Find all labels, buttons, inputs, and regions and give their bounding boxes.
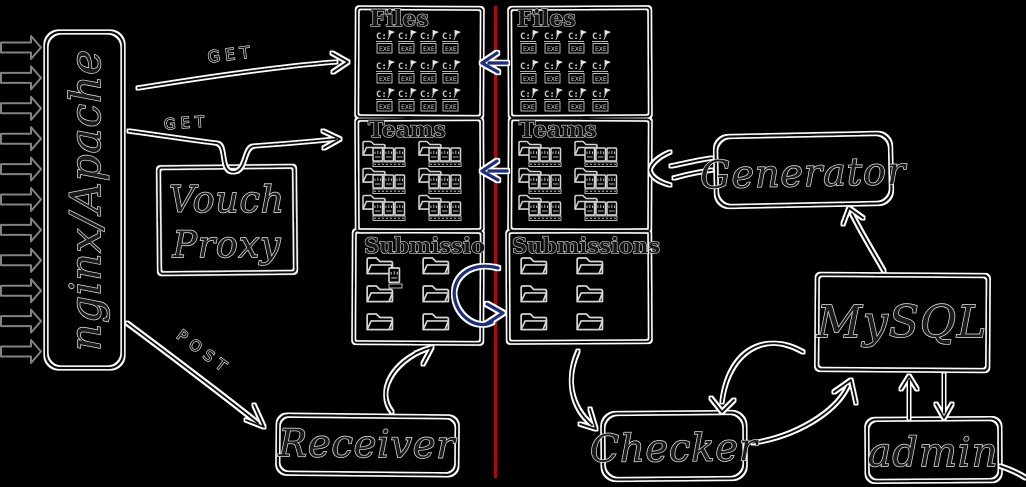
exe-file-icon bbox=[420, 60, 439, 83]
team-folder-icon bbox=[519, 169, 561, 194]
exe-file-icon bbox=[544, 60, 563, 83]
submissions-title-left: Submissio bbox=[364, 233, 485, 258]
exe-file-icon bbox=[442, 60, 461, 83]
exe-file-icon bbox=[568, 88, 587, 111]
right-files-icons bbox=[520, 30, 611, 111]
mysql-label: MySQL bbox=[816, 297, 987, 348]
exe-file-icon bbox=[520, 60, 539, 83]
right-teams-icons bbox=[519, 142, 617, 221]
submission-folder-icon bbox=[423, 314, 448, 330]
submission-file-icon bbox=[389, 268, 399, 282]
mysql-to-checker-arrow bbox=[711, 343, 803, 412]
submissions-title-right: Submissions bbox=[512, 233, 660, 258]
get-label-files: GET bbox=[207, 42, 256, 67]
team-folder-icon bbox=[363, 142, 405, 167]
exe-file-icon bbox=[544, 88, 563, 111]
submission-file-strip bbox=[389, 284, 402, 288]
edge-stroke bbox=[1000, 466, 1026, 478]
architecture-diagram: C:/ EXE bbox=[0, 0, 1026, 487]
incoming-request-arrow bbox=[1, 218, 41, 241]
submission-folder-icon bbox=[423, 286, 448, 302]
exe-file-icon bbox=[420, 30, 439, 53]
receiver-to-submissions-arrow bbox=[386, 347, 432, 412]
exe-file-icon bbox=[376, 30, 395, 53]
files-title-left: Files bbox=[370, 6, 429, 32]
exe-file-icon bbox=[376, 88, 395, 111]
incoming-request-arrow bbox=[1, 97, 41, 120]
submission-folder-icon bbox=[367, 314, 392, 330]
exe-file-icon bbox=[398, 88, 417, 111]
incoming-request-arrow bbox=[1, 249, 41, 272]
files-title-right: Files bbox=[517, 6, 576, 32]
sync-arrow-files bbox=[482, 53, 507, 72]
exe-file-icon bbox=[376, 60, 395, 83]
exe-file-icon bbox=[544, 30, 563, 53]
post-label: POST bbox=[173, 326, 235, 379]
exe-file-icon bbox=[520, 88, 539, 111]
admin-to-mysql-arrow bbox=[901, 376, 917, 419]
submissions-to-checker-arrow bbox=[571, 351, 596, 429]
submission-folder-icon bbox=[521, 314, 546, 330]
incoming-request-arrow bbox=[1, 279, 41, 302]
team-folder-icon bbox=[419, 196, 461, 221]
exe-file-icon bbox=[442, 30, 461, 53]
sync-arrows bbox=[454, 53, 507, 325]
left-teams-icons bbox=[363, 142, 461, 221]
mysql-to-admin-arrow bbox=[936, 374, 952, 418]
exe-file-icon bbox=[520, 30, 539, 53]
incoming-traffic-arrows bbox=[1, 36, 41, 363]
submission-folder-icon bbox=[521, 286, 546, 302]
exe-file-icon bbox=[592, 60, 611, 83]
generator-label: Generator bbox=[700, 149, 909, 197]
team-folder-icon bbox=[575, 169, 617, 194]
team-folder-icon bbox=[519, 142, 561, 167]
incoming-request-arrow bbox=[1, 66, 41, 89]
submission-folder-icon bbox=[521, 258, 546, 274]
right-submissions-icons bbox=[521, 258, 602, 330]
teams-title-right: Teams bbox=[519, 117, 597, 143]
submission-folder-icon bbox=[423, 258, 448, 274]
vouch-proxy-label-line2: Proxy bbox=[172, 225, 282, 266]
team-folder-icon bbox=[363, 169, 405, 194]
incoming-request-arrow bbox=[1, 158, 41, 181]
exe-file-icon bbox=[398, 30, 417, 53]
incoming-request-arrow bbox=[1, 127, 41, 150]
exe-file-icon bbox=[592, 88, 611, 111]
get-label-teams: GET bbox=[163, 112, 209, 133]
sync-arrow-teams bbox=[482, 161, 507, 180]
incoming-request-arrow bbox=[1, 188, 41, 211]
team-folder-icon bbox=[363, 196, 405, 221]
incoming-request-arrow bbox=[1, 36, 41, 59]
checker-to-mysql-arrow bbox=[753, 380, 856, 443]
admin-label: admin bbox=[868, 430, 999, 476]
submission-folder-icon bbox=[577, 314, 602, 330]
exe-file-icon bbox=[420, 88, 439, 111]
left-submissions-icons bbox=[367, 258, 448, 330]
exe-file-icon bbox=[592, 30, 611, 53]
team-folder-icon bbox=[575, 196, 617, 221]
incoming-request-arrow bbox=[1, 310, 41, 333]
submission-folder-icon bbox=[577, 258, 602, 274]
exe-file-icon bbox=[568, 60, 587, 83]
vouch-proxy-label-line1: Vouch bbox=[169, 180, 285, 221]
submission-folder-icon bbox=[577, 286, 602, 302]
receiver-label: Receiver bbox=[277, 421, 457, 467]
left-files-icons bbox=[376, 30, 461, 111]
team-folder-icon bbox=[519, 196, 561, 221]
exe-file-icon bbox=[568, 30, 587, 53]
exe-file-icon bbox=[442, 88, 461, 111]
teams-title-left: Teams bbox=[368, 117, 446, 143]
team-folder-icon bbox=[575, 142, 617, 167]
team-folder-icon bbox=[419, 142, 461, 167]
checker-label: Checker bbox=[590, 425, 760, 470]
incoming-request-arrow bbox=[1, 340, 41, 363]
diagram-canvas: C:/ EXE bbox=[0, 0, 1026, 487]
nginx-label: nginx/Apache bbox=[61, 49, 110, 351]
team-folder-icon bbox=[419, 169, 461, 194]
exe-file-icon bbox=[398, 60, 417, 83]
mysql-to-generator-arrow bbox=[843, 208, 884, 271]
